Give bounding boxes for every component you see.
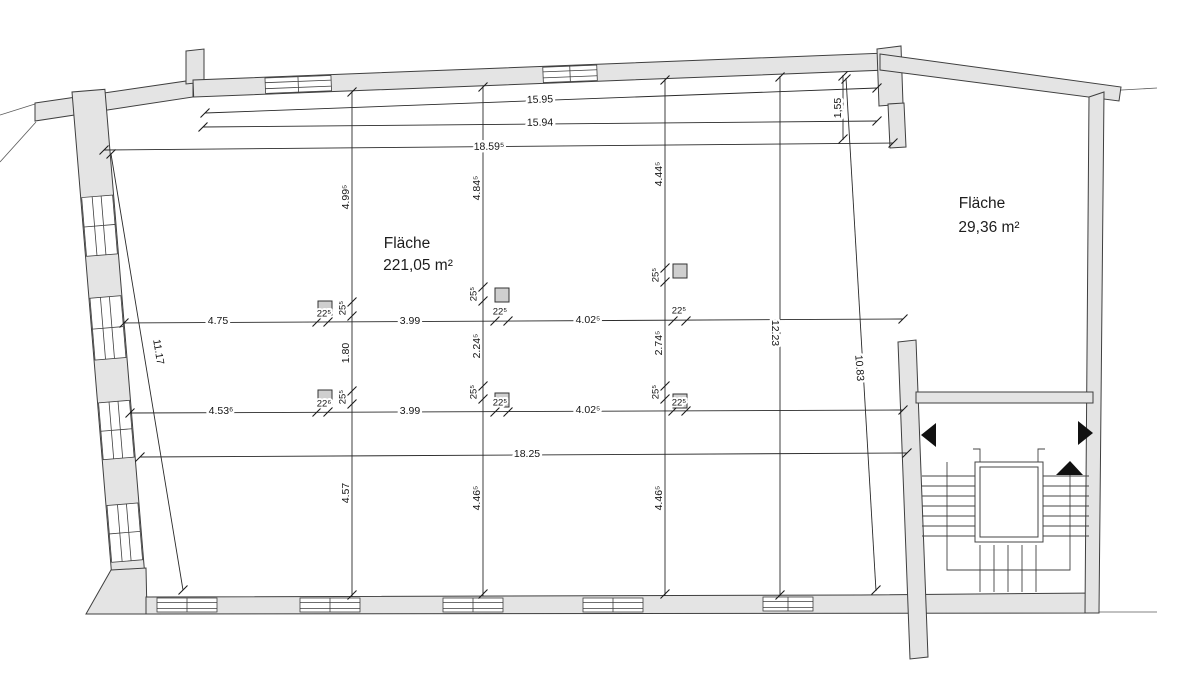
dim-mid-3: 2.74⁵ xyxy=(653,331,665,356)
dim-right-room: 10.83 xyxy=(852,354,866,381)
window xyxy=(583,598,643,612)
wall-stub-right-lower xyxy=(888,103,906,148)
main-room-area-label: Fläche xyxy=(384,235,431,252)
dim-row2-seg2: 3.99 xyxy=(400,405,421,417)
dim-col-depth: 25⁵ xyxy=(338,301,349,316)
dim-grid-top-1: 4.99⁵ xyxy=(340,185,352,210)
dim-top-inner: 15.94 xyxy=(527,117,554,129)
dim-col-width: 22⁵ xyxy=(493,307,508,318)
dim-col-depth: 25⁵ xyxy=(651,385,662,400)
wall-top-main xyxy=(193,53,887,97)
dim-col-depth: 25⁵ xyxy=(469,385,480,400)
dim-right-inner: 12.23 xyxy=(769,320,781,346)
dim-grid-bot-1: 4.57 xyxy=(340,483,352,504)
dim-col-depth: 25⁵ xyxy=(651,268,662,283)
column xyxy=(673,264,687,278)
window xyxy=(300,598,360,612)
room-labels: Fläche 221,05 m² Fläche 29,36 m² xyxy=(383,195,1019,274)
dim-col-width: 22⁵ xyxy=(317,309,332,320)
wall-right xyxy=(1085,92,1104,613)
dim-offset-right: 1,55 xyxy=(832,98,844,119)
wall-bottom xyxy=(146,593,1097,614)
dim-col-width: 22⁵ xyxy=(672,398,687,409)
dim-left-wall: 11.17 xyxy=(150,338,166,365)
dim-top-overall: 18.59⁵ xyxy=(474,141,505,153)
column xyxy=(495,288,509,302)
exterior-walls xyxy=(0,46,1157,659)
dim-top-outer: 15.95 xyxy=(527,93,554,106)
window xyxy=(107,503,143,562)
dim-grid-bot-3: 4.46⁵ xyxy=(653,486,665,511)
side-room-area-value: 29,36 m² xyxy=(958,219,1019,236)
columns xyxy=(318,264,687,408)
window xyxy=(157,598,217,612)
floor-plan-svg: 15.95 15.94 18.59⁵ 1,55 11.17 4.99⁵ 4.84… xyxy=(0,0,1200,674)
dim-col-depth: 25⁵ xyxy=(338,390,349,405)
wall-left xyxy=(72,89,147,600)
staircase xyxy=(921,421,1093,592)
main-room-area-value: 221,05 m² xyxy=(383,257,453,274)
side-room-area-label: Fläche xyxy=(959,195,1006,212)
window xyxy=(99,400,135,459)
dim-span-bottom: 18.25 xyxy=(514,448,540,460)
dim-mid-2: 2.24⁵ xyxy=(471,334,483,359)
dim-row2-seg3: 4.02⁵ xyxy=(576,404,601,416)
window xyxy=(443,598,503,612)
window xyxy=(90,296,126,360)
dimension-lines xyxy=(104,75,907,597)
arrow-up-icon xyxy=(1056,461,1083,475)
dim-col-width: 22⁵ xyxy=(672,306,687,317)
dim-grid-top-2: 4.84⁵ xyxy=(471,176,483,201)
wall-stair-top xyxy=(916,392,1093,403)
floor-plan-page: 15.95 15.94 18.59⁵ 1,55 11.17 4.99⁵ 4.84… xyxy=(0,0,1200,674)
wall-corner-bottom-left xyxy=(86,568,147,614)
dim-mid-1: 1.80 xyxy=(340,343,352,364)
dimension-ticks xyxy=(100,72,912,600)
dim-col-depth: 25⁵ xyxy=(469,287,480,302)
window xyxy=(763,597,813,611)
dim-row2-seg1: 4.53⁶ xyxy=(209,405,234,417)
dim-col-width-alt: 22⁶ xyxy=(317,399,332,410)
arrow-left-icon xyxy=(921,423,936,447)
wall-stub-top xyxy=(186,49,204,84)
wall-top-left xyxy=(35,80,193,121)
window xyxy=(265,75,332,93)
dim-grid-bot-2: 4.46⁵ xyxy=(471,486,483,511)
window xyxy=(82,195,118,256)
dim-row1-seg3: 4.02⁵ xyxy=(576,314,601,326)
dim-row1-seg2: 3.99 xyxy=(400,315,421,327)
dim-row1-seg1: 4.75 xyxy=(208,315,229,327)
dim-col-width: 22⁵ xyxy=(493,398,508,409)
wall-top-right-room xyxy=(880,54,1121,101)
window xyxy=(543,65,598,82)
dim-grid-top-3: 4.44⁵ xyxy=(653,162,665,187)
